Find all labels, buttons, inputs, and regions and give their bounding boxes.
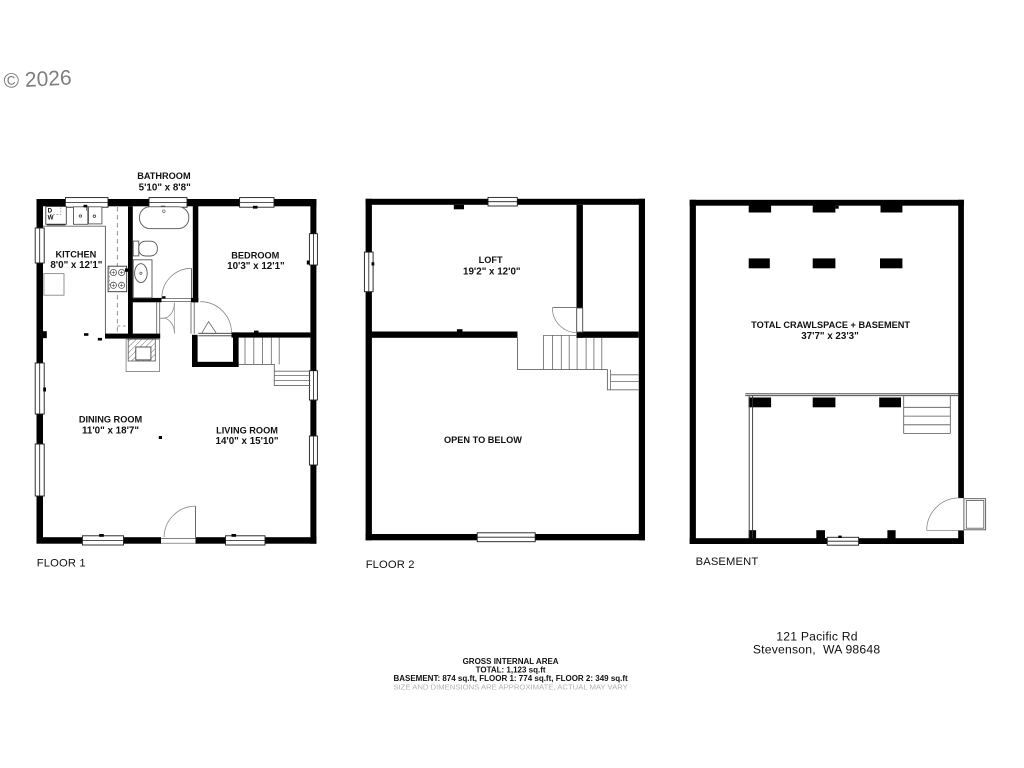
svg-text:BATHROOM: BATHROOM bbox=[137, 171, 191, 181]
svg-text:TOTAL CRAWLSPACE + BASEMENT: TOTAL CRAWLSPACE + BASEMENT bbox=[751, 320, 910, 330]
svg-text:14'0" x 15'10": 14'0" x 15'10" bbox=[216, 436, 279, 447]
svg-text:LOFT: LOFT bbox=[479, 255, 503, 265]
svg-text:LIVING ROOM: LIVING ROOM bbox=[216, 425, 278, 435]
svg-text:W: W bbox=[48, 215, 54, 222]
svg-text:121 Pacific Rd: 121 Pacific Rd bbox=[776, 630, 857, 644]
svg-text:OPEN TO BELOW: OPEN TO BELOW bbox=[444, 435, 522, 445]
svg-text:10'3" x 12'1": 10'3" x 12'1" bbox=[227, 261, 285, 272]
svg-text:37'7" x 23'3": 37'7" x 23'3" bbox=[801, 331, 859, 342]
svg-text:8'0" x 12'1": 8'0" x 12'1" bbox=[50, 260, 102, 271]
svg-text:D: D bbox=[48, 208, 53, 215]
svg-text:KITCHEN: KITCHEN bbox=[55, 249, 96, 259]
svg-text:FLOOR 1: FLOOR 1 bbox=[37, 558, 86, 570]
svg-text:BEDROOM: BEDROOM bbox=[231, 250, 279, 260]
svg-text:5'10" x 8'8": 5'10" x 8'8" bbox=[139, 182, 191, 193]
svg-text:Stevenson, WA 98648: Stevenson, WA 98648 bbox=[753, 643, 881, 657]
svg-text:© 2026: © 2026 bbox=[3, 66, 72, 93]
svg-text:DINING ROOM: DINING ROOM bbox=[79, 415, 143, 425]
svg-text:FLOOR 2: FLOOR 2 bbox=[366, 559, 415, 571]
svg-text:BASEMENT: BASEMENT bbox=[696, 556, 759, 568]
svg-text:11'0" x 18'7": 11'0" x 18'7" bbox=[82, 425, 139, 436]
svg-text:SIZE AND DIMENSIONS ARE APPROX: SIZE AND DIMENSIONS ARE APPROXIMATE, ACT… bbox=[393, 682, 627, 691]
svg-text:19'2" x 12'0": 19'2" x 12'0" bbox=[463, 267, 521, 278]
